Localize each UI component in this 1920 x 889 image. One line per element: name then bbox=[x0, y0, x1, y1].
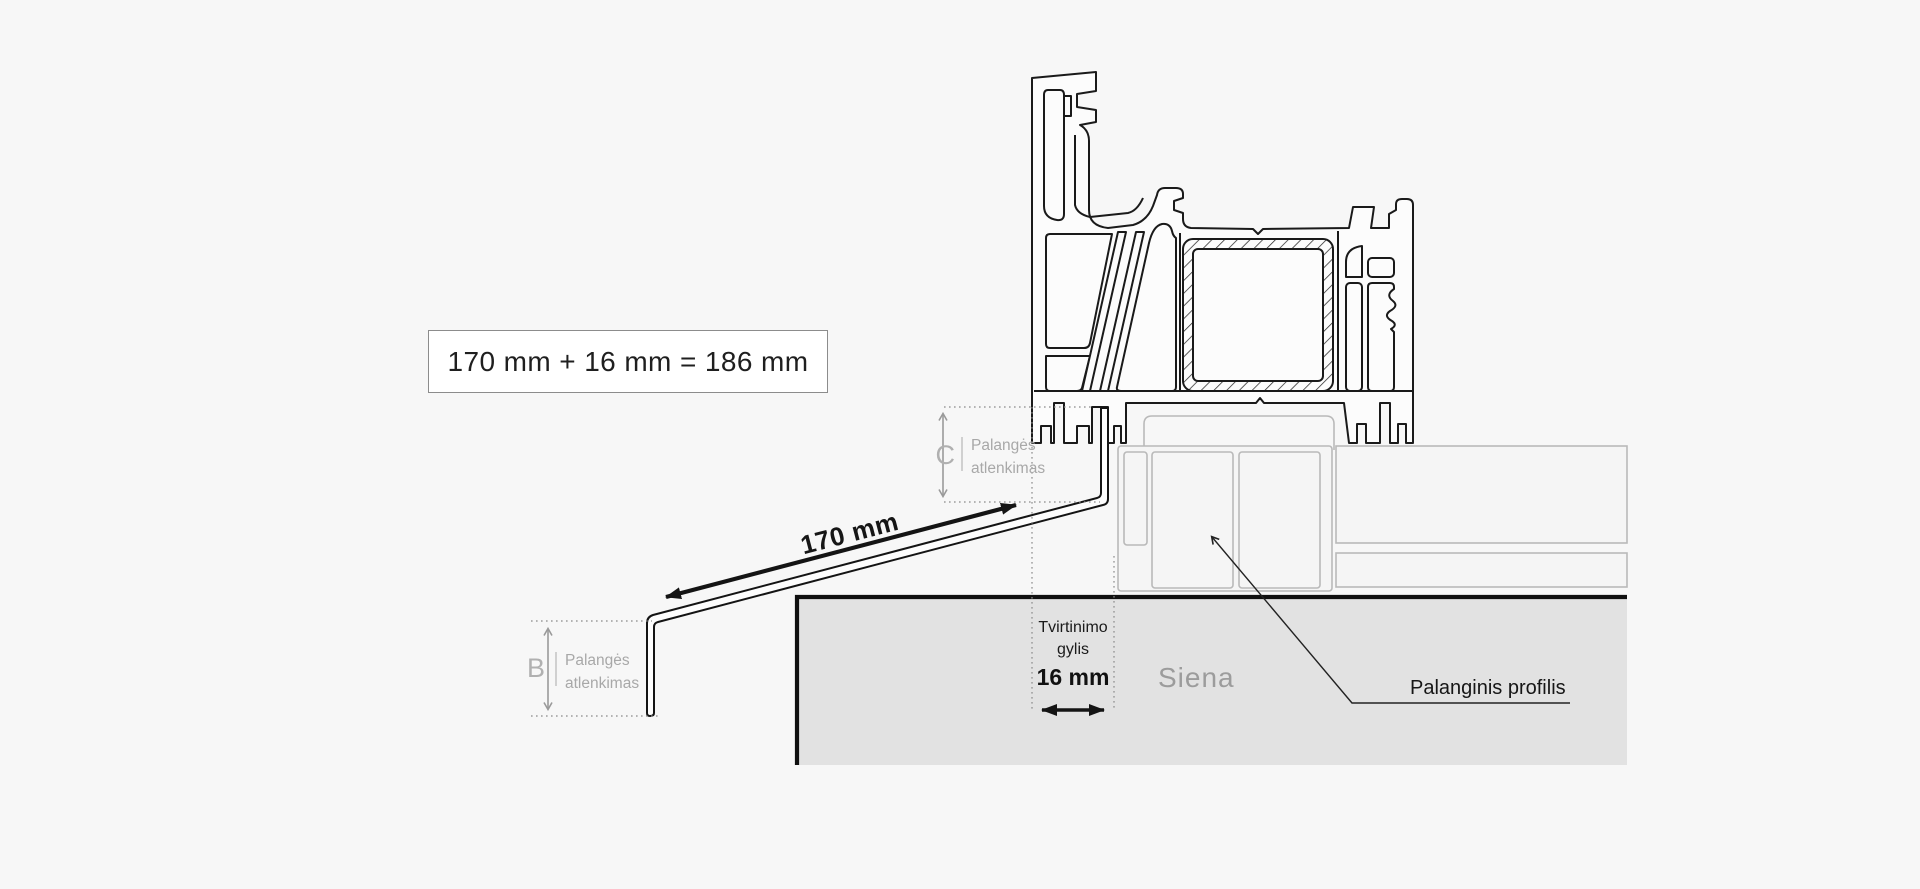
support-chamber-a bbox=[1124, 452, 1147, 545]
sill-profile-label: Palanginis profilis bbox=[1410, 677, 1566, 700]
technical-drawing bbox=[0, 0, 1920, 889]
frame-chamber-right-bot1 bbox=[1346, 283, 1362, 391]
dimension-b-label-line2: atlenkimas bbox=[565, 672, 639, 695]
frame-chamber-right-bot2 bbox=[1368, 283, 1395, 391]
support-extension-lower bbox=[1336, 553, 1627, 587]
support-chamber-c bbox=[1239, 452, 1320, 588]
dimension-b-label: Palangės atlenkimas bbox=[565, 649, 639, 695]
fixing-depth-label: Tvirtinimo gylis bbox=[1029, 617, 1117, 661]
diagram-canvas: 170 mm + 16 mm = 186 mm C Palangės atlen… bbox=[0, 0, 1920, 889]
fixing-depth-label-line1: Tvirtinimo bbox=[1029, 617, 1117, 639]
dimension-b-label-line1: Palangės bbox=[565, 649, 639, 672]
window-frame-profile bbox=[1032, 72, 1413, 443]
support-tongue bbox=[1144, 416, 1334, 450]
frame-upstand-slot bbox=[1044, 90, 1064, 220]
dimension-b-letter: B bbox=[505, 653, 545, 684]
fixing-depth-label-line2: gylis bbox=[1029, 639, 1117, 661]
formula-text: 170 mm + 16 mm = 186 mm bbox=[448, 346, 809, 378]
dimension-c-letter: C bbox=[905, 440, 955, 471]
frame-chamber-right-top2 bbox=[1368, 258, 1394, 277]
support-extension-upper bbox=[1336, 446, 1627, 543]
dimension-c-label-line2: atlenkimas bbox=[971, 457, 1045, 480]
fixing-depth-value: 16 mm bbox=[1029, 664, 1117, 691]
support-chamber-b bbox=[1152, 452, 1233, 588]
steel-reinforcement-core bbox=[1193, 249, 1323, 381]
formula-box: 170 mm + 16 mm = 186 mm bbox=[428, 330, 828, 393]
dimension-c-label: Palangės atlenkimas bbox=[971, 434, 1045, 480]
wall-label: Siena bbox=[1158, 662, 1235, 694]
dimension-c-label-line1: Palangės bbox=[971, 434, 1045, 457]
